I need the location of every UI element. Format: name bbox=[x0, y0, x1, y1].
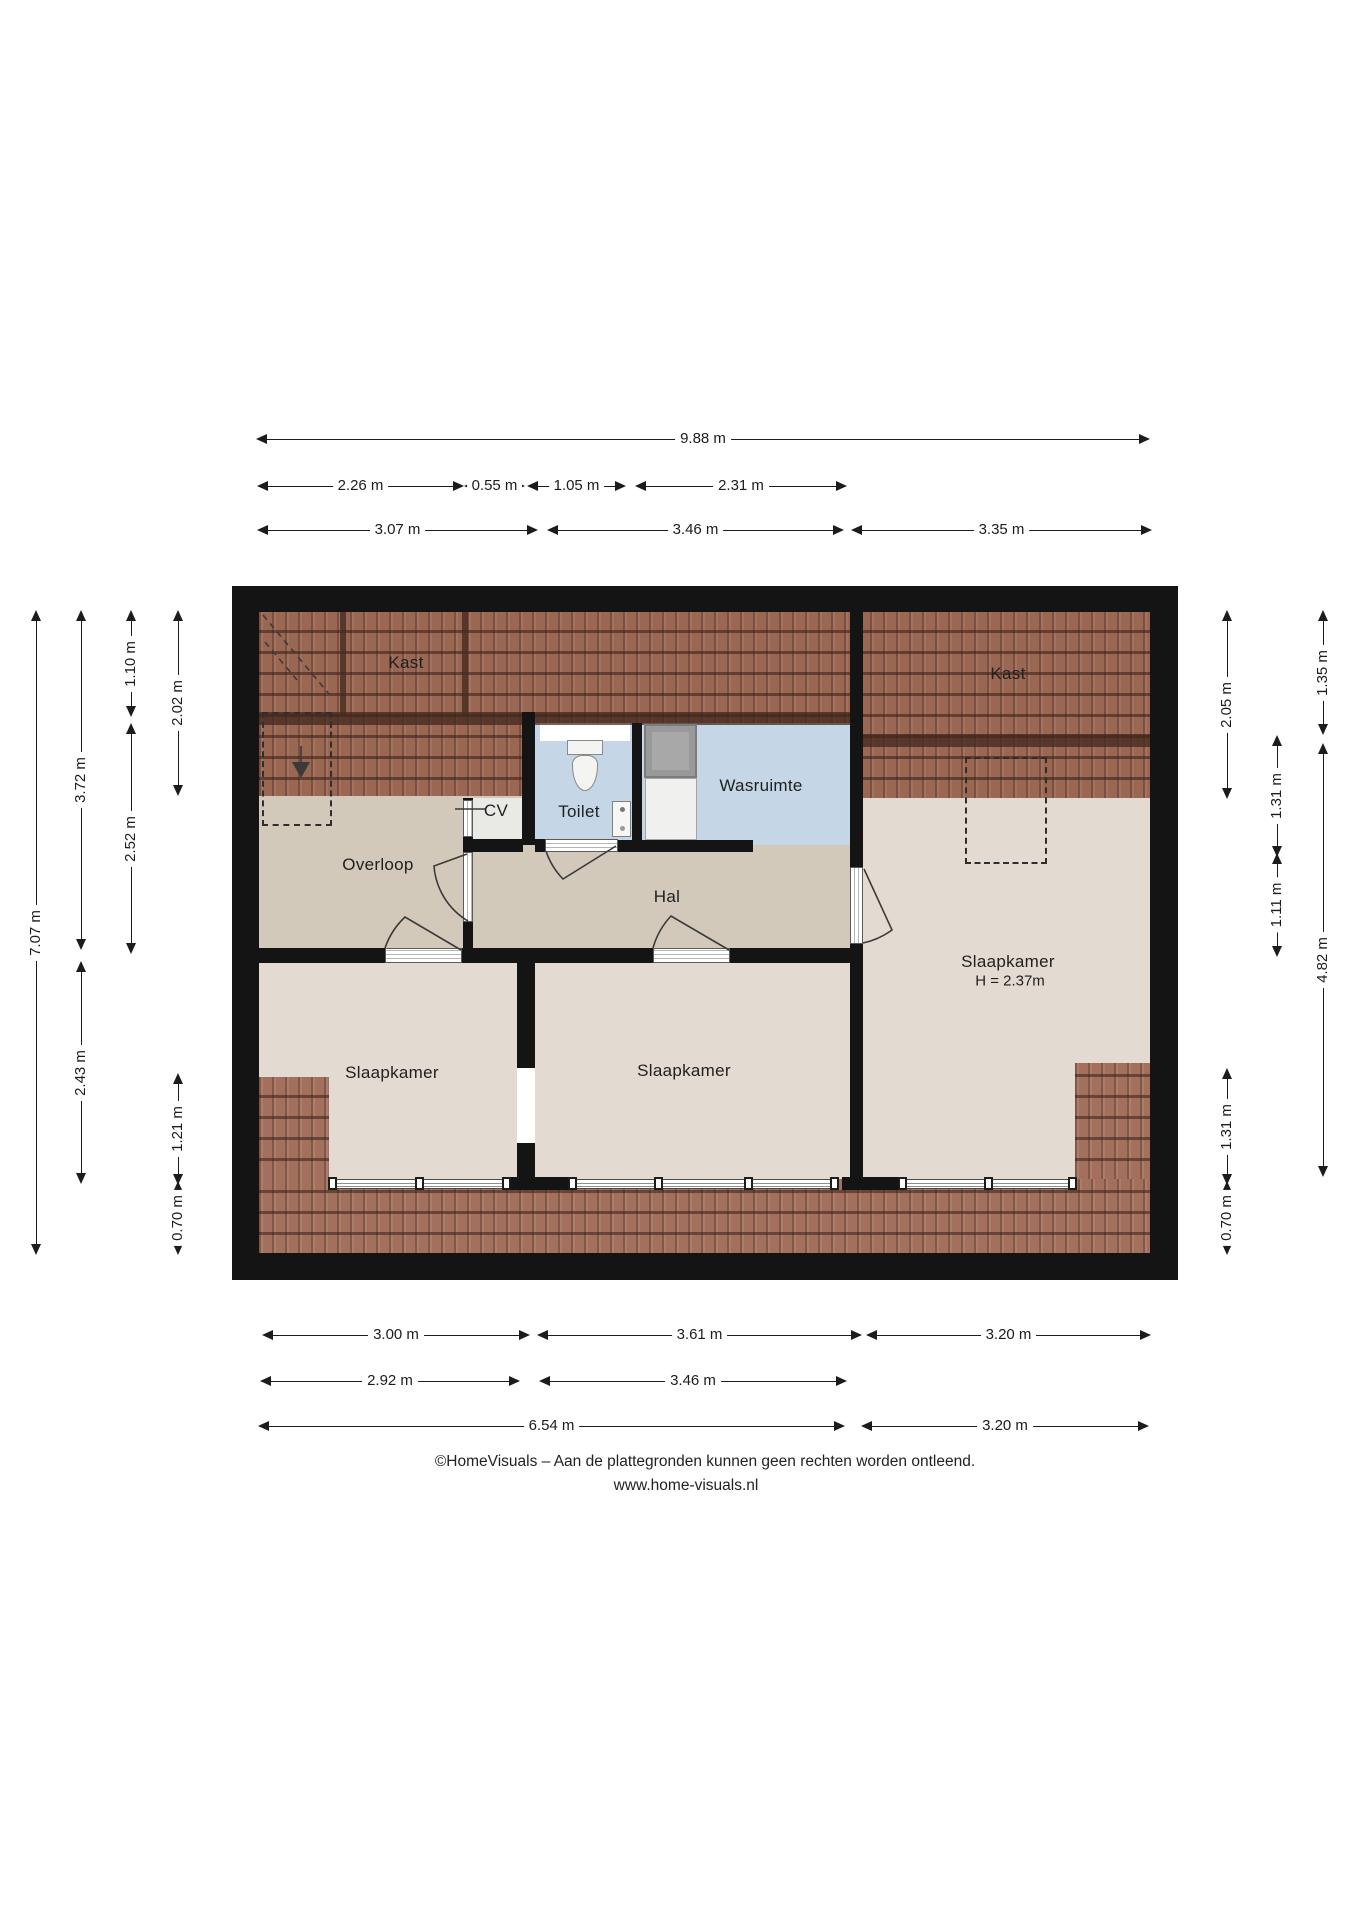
dimension-arrow-icon bbox=[76, 1173, 86, 1184]
dimension-arrow-icon bbox=[539, 1376, 550, 1386]
dimension-horizontal: 3.46 m bbox=[549, 530, 842, 531]
room-label-slaapkamer-left: Slaapkamer bbox=[345, 1063, 439, 1083]
room-label-slaapkamer-right: Slaapkamer bbox=[961, 952, 1055, 972]
dimension-arrow-icon bbox=[1318, 743, 1328, 754]
dimension-label: 3.72 m bbox=[73, 752, 89, 808]
dimension-arrow-icon bbox=[861, 1421, 872, 1431]
dimension-vertical: 2.05 m bbox=[1227, 612, 1228, 797]
door-arc bbox=[863, 869, 892, 943]
dimension-vertical: 4.82 m bbox=[1323, 745, 1324, 1175]
dimension-vertical: 0.70 m bbox=[1227, 1183, 1228, 1253]
dimension-arrow-icon bbox=[126, 723, 136, 734]
dimension-vertical: 2.52 m bbox=[131, 725, 132, 952]
dimension-arrow-icon bbox=[1222, 1068, 1232, 1079]
dimension-label: 0.70 m bbox=[170, 1190, 186, 1246]
dimension-label: 3.46 m bbox=[665, 1373, 721, 1389]
dimension-horizontal: 3.20 m bbox=[868, 1335, 1149, 1336]
dimension-arrow-icon bbox=[615, 481, 626, 491]
dimension-label: 3.35 m bbox=[974, 522, 1030, 538]
floor-plan: KastKastCVToiletWasruimteOverloopHalSlaa… bbox=[232, 586, 1178, 1280]
dimension-arrow-icon bbox=[1140, 1330, 1151, 1340]
room-sublabel-slaapkamer-right: H = 2.37m bbox=[975, 973, 1045, 990]
dimension-arrow-icon bbox=[1138, 1421, 1149, 1431]
dimension-arrow-icon bbox=[834, 1421, 845, 1431]
room-label-hal: Hal bbox=[654, 887, 680, 907]
dimension-arrow-icon bbox=[256, 434, 267, 444]
dimension-label: 2.02 m bbox=[170, 675, 186, 731]
dimension-arrow-icon bbox=[76, 939, 86, 950]
dimension-arrow-icon bbox=[76, 961, 86, 972]
dimension-label: 6.54 m bbox=[524, 1418, 580, 1434]
dimension-label: 1.11 m bbox=[1269, 878, 1285, 933]
dimension-arrow-icon bbox=[453, 481, 464, 491]
dimension-vertical: 0.70 m bbox=[178, 1183, 179, 1253]
dimension-label: 3.46 m bbox=[668, 522, 724, 538]
dimension-label: 2.26 m bbox=[333, 478, 389, 494]
dimension-arrow-icon bbox=[1139, 434, 1150, 444]
dimension-arrow-icon bbox=[1272, 853, 1282, 864]
dimension-label: 1.31 m bbox=[1219, 1099, 1235, 1155]
door-arc bbox=[385, 917, 461, 950]
door-arc bbox=[546, 846, 616, 879]
dimension-vertical: 2.02 m bbox=[178, 612, 179, 794]
dimension-horizontal: 9.88 m bbox=[258, 439, 1148, 440]
dimension-label: 1.31 m bbox=[1269, 768, 1285, 824]
dimension-label: 1.10 m bbox=[123, 636, 139, 692]
dimension-label: 1.05 m bbox=[549, 478, 605, 494]
dimension-label: 1.35 m bbox=[1315, 645, 1331, 701]
stairs-down-arrow-head bbox=[292, 762, 310, 778]
dimension-horizontal: 3.00 m bbox=[264, 1335, 528, 1336]
dimension-label: 2.05 m bbox=[1219, 677, 1235, 733]
roof-hip-dashed bbox=[263, 615, 329, 694]
dimension-arrow-icon bbox=[262, 1330, 273, 1340]
door-arc bbox=[434, 854, 468, 921]
dimension-arrow-icon bbox=[1222, 788, 1232, 799]
dimension-arrow-icon bbox=[537, 1330, 548, 1340]
room-label-toilet: Toilet bbox=[558, 802, 600, 822]
dimension-arrow-icon bbox=[851, 1330, 862, 1340]
dimension-label: 2.92 m bbox=[362, 1373, 418, 1389]
dimension-vertical: 1.35 m bbox=[1323, 612, 1324, 733]
dimension-horizontal: 2.31 m bbox=[637, 486, 845, 487]
roof-hip-dashed bbox=[265, 642, 297, 680]
dimension-arrow-icon bbox=[547, 525, 558, 535]
dimension-arrow-icon bbox=[173, 785, 183, 796]
dimension-horizontal: 6.54 m bbox=[260, 1426, 843, 1427]
dimension-vertical: 2.43 m bbox=[81, 963, 82, 1182]
floorplan-page: KastKastCVToiletWasruimteOverloopHalSlaa… bbox=[0, 0, 1358, 1920]
dimension-arrow-icon bbox=[1318, 610, 1328, 621]
dimension-label: 2.43 m bbox=[73, 1045, 89, 1101]
room-label-overloop: Overloop bbox=[342, 855, 413, 875]
dimension-label: 2.31 m bbox=[713, 478, 769, 494]
dimension-horizontal: 3.46 m bbox=[541, 1381, 845, 1382]
dimension-horizontal: 0.55 m bbox=[466, 486, 523, 487]
room-label-slaapkamer-mid: Slaapkamer bbox=[637, 1061, 731, 1081]
dimension-arrow-icon bbox=[1272, 735, 1282, 746]
dimension-arrow-icon bbox=[836, 1376, 847, 1386]
dimension-arrow-icon bbox=[851, 525, 862, 535]
dimension-arrow-icon bbox=[31, 610, 41, 621]
dimension-horizontal: 3.07 m bbox=[259, 530, 536, 531]
dimension-arrow-icon bbox=[257, 481, 268, 491]
dimension-arrow-icon bbox=[1318, 1166, 1328, 1177]
dimension-arrow-icon bbox=[509, 1376, 520, 1386]
dimension-horizontal: 3.35 m bbox=[853, 530, 1150, 531]
dimension-vertical: 1.11 m bbox=[1277, 855, 1278, 955]
dimension-arrow-icon bbox=[1272, 946, 1282, 957]
room-label-kast-right: Kast bbox=[990, 664, 1025, 684]
dimension-arrow-icon bbox=[519, 1330, 530, 1340]
dimension-horizontal: 3.61 m bbox=[539, 1335, 860, 1336]
dimension-arrow-icon bbox=[173, 610, 183, 621]
dimension-arrow-icon bbox=[836, 481, 847, 491]
dimension-arrow-icon bbox=[833, 525, 844, 535]
room-label-wasruimte: Wasruimte bbox=[719, 776, 802, 796]
dimension-label: 7.07 m bbox=[28, 905, 44, 961]
dimension-arrow-icon bbox=[527, 481, 538, 491]
dimension-horizontal: 2.92 m bbox=[262, 1381, 518, 1382]
dimension-arrow-icon bbox=[173, 1073, 183, 1084]
door-swing-overlay bbox=[259, 612, 1150, 1253]
dimension-label: 3.20 m bbox=[981, 1327, 1037, 1343]
dimension-horizontal: 3.20 m bbox=[863, 1426, 1147, 1427]
footer-disclaimer: ©HomeVisuals – Aan de plattegronden kunn… bbox=[435, 1453, 975, 1471]
dimension-label: 1.21 m bbox=[170, 1101, 186, 1157]
dimension-label: 4.82 m bbox=[1315, 932, 1331, 988]
dimension-vertical: 1.31 m bbox=[1277, 737, 1278, 855]
dimension-vertical: 1.31 m bbox=[1227, 1070, 1228, 1183]
room-label-kast-left: Kast bbox=[388, 653, 423, 673]
dimension-arrow-icon bbox=[527, 525, 538, 535]
room-label-cv: CV bbox=[484, 801, 508, 821]
floor-plan-interior: KastKastCVToiletWasruimteOverloopHalSlaa… bbox=[259, 612, 1150, 1253]
dimension-vertical: 1.10 m bbox=[131, 612, 132, 715]
dimension-arrow-icon bbox=[260, 1376, 271, 1386]
dimension-vertical: 3.72 m bbox=[81, 612, 82, 948]
dimension-label: 3.20 m bbox=[977, 1418, 1033, 1434]
dimension-arrow-icon bbox=[866, 1330, 877, 1340]
dimension-label: 3.07 m bbox=[370, 522, 426, 538]
dimension-arrow-icon bbox=[258, 1421, 269, 1431]
dimension-vertical: 1.21 m bbox=[178, 1075, 179, 1183]
dimension-arrow-icon bbox=[635, 481, 646, 491]
dimension-horizontal: 2.26 m bbox=[259, 486, 462, 487]
dimension-arrow-icon bbox=[126, 706, 136, 717]
door-arc bbox=[653, 916, 729, 950]
dimension-arrow-icon bbox=[1318, 724, 1328, 735]
dimension-arrow-icon bbox=[1222, 610, 1232, 621]
dimension-arrow-icon bbox=[1141, 525, 1152, 535]
dimension-label: 3.61 m bbox=[672, 1327, 728, 1343]
dimension-label: 9.88 m bbox=[675, 431, 731, 447]
dimension-arrow-icon bbox=[76, 610, 86, 621]
dimension-label: 2.52 m bbox=[123, 811, 139, 867]
dimension-label: 3.00 m bbox=[368, 1327, 424, 1343]
dimension-horizontal: 1.05 m bbox=[529, 486, 624, 487]
dimension-arrow-icon bbox=[257, 525, 268, 535]
dimension-vertical: 7.07 m bbox=[36, 612, 37, 1253]
dimension-arrow-icon bbox=[31, 1244, 41, 1255]
dimension-arrow-icon bbox=[126, 610, 136, 621]
dimension-arrow-icon bbox=[126, 943, 136, 954]
dimension-label: 0.55 m bbox=[467, 478, 523, 494]
footer-website: www.home-visuals.nl bbox=[614, 1477, 759, 1495]
dimension-label: 0.70 m bbox=[1219, 1190, 1235, 1246]
